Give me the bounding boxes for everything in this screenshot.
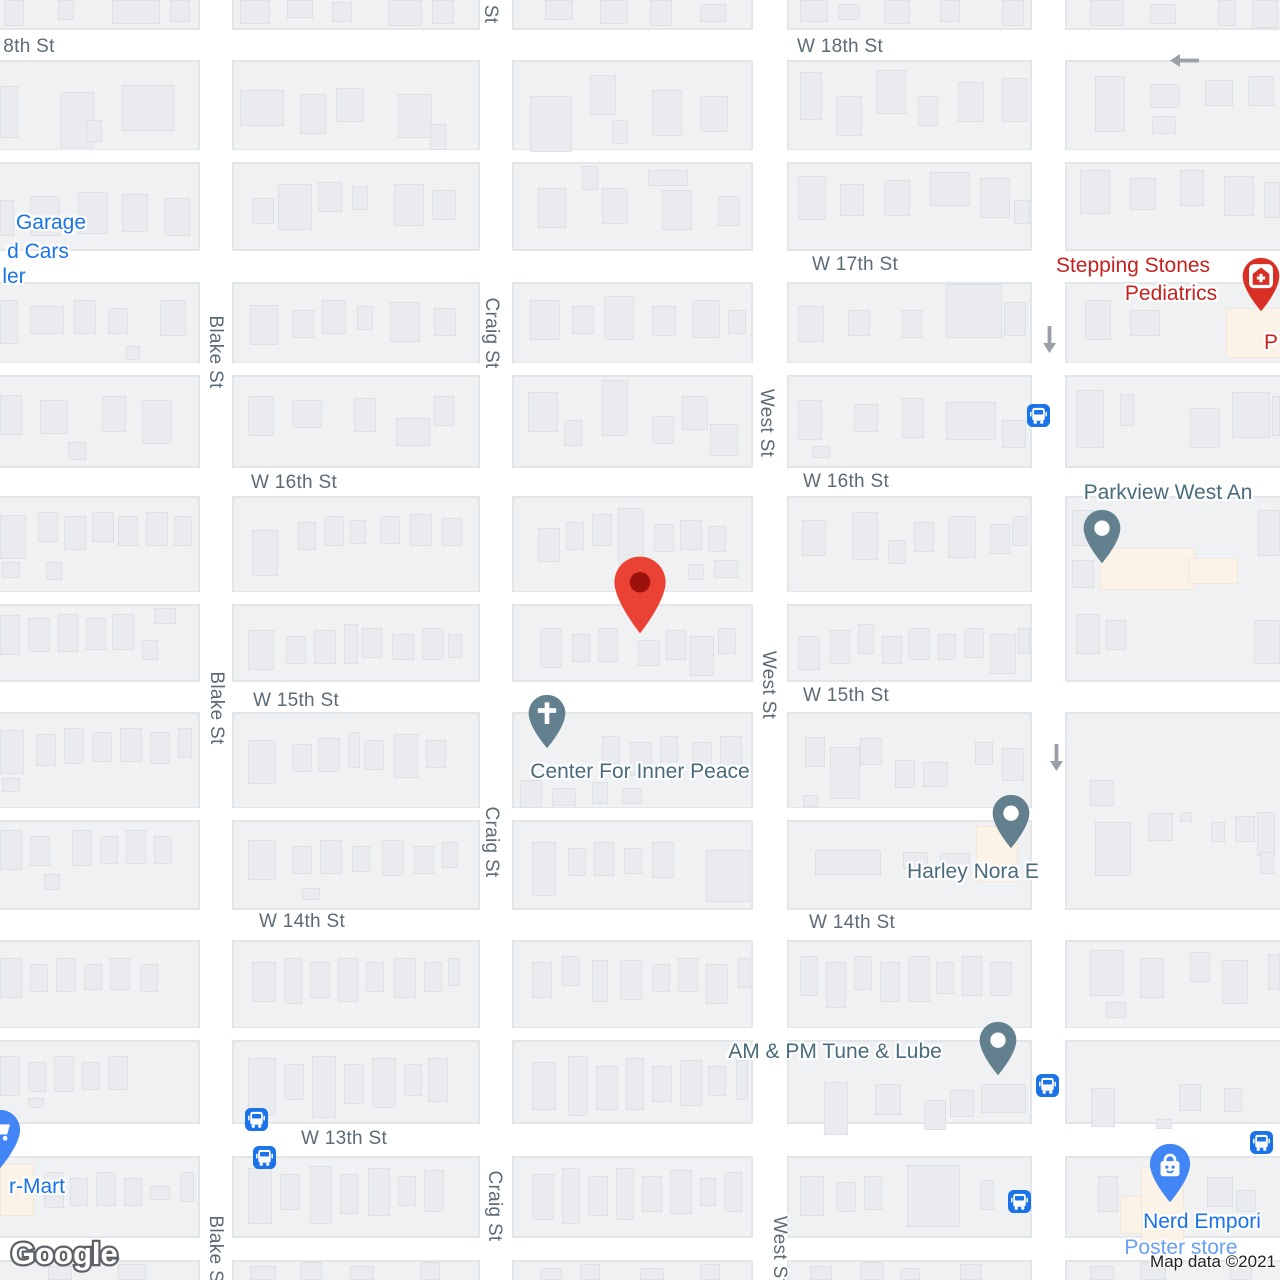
building: [1190, 408, 1220, 448]
alley: [0, 150, 1280, 162]
building: [287, 0, 313, 18]
building: [562, 1168, 580, 1224]
google-logo[interactable]: Google: [8, 1230, 148, 1276]
building: [252, 198, 274, 224]
building: [923, 762, 948, 787]
building: [594, 842, 614, 876]
poi-label-nerd-empori[interactable]: Nerd Empori: [1143, 1210, 1261, 1234]
building: [318, 738, 340, 772]
harley-nora-pin[interactable]: [991, 793, 1031, 855]
building: [908, 628, 930, 660]
building: [354, 398, 376, 432]
building: [100, 836, 118, 864]
building: [596, 1066, 618, 1110]
poi-label-stepping-stones[interactable]: Stepping Stones: [1056, 254, 1210, 278]
building: [604, 296, 634, 340]
building: [590, 75, 616, 115]
building: [398, 94, 432, 138]
building: [654, 524, 674, 552]
building: [1207, 1177, 1233, 1207]
building: [248, 740, 276, 784]
poi-label-p[interactable]: P: [1264, 331, 1278, 355]
building: [690, 636, 714, 676]
building: [2, 562, 20, 578]
one-way-arrow-down-icon: [1043, 326, 1056, 358]
building: [344, 1064, 364, 1104]
building: [248, 630, 274, 670]
building: [990, 962, 1012, 996]
building: [284, 1064, 304, 1100]
building: [958, 82, 984, 122]
street-label-w-15th-st: W 15th St: [253, 690, 339, 712]
building: [602, 188, 628, 224]
building: [880, 962, 900, 1002]
building: [568, 1056, 588, 1116]
building: [802, 520, 826, 556]
building: [718, 196, 740, 226]
building: [1106, 620, 1126, 650]
building: [286, 636, 306, 664]
building: [1150, 4, 1176, 24]
building: [424, 962, 442, 992]
building: [1224, 1088, 1242, 1112]
building: [678, 958, 698, 992]
building: [962, 956, 982, 996]
building: [54, 1056, 74, 1092]
street-label-w-15th-st: W 15th St: [803, 685, 889, 707]
building: [357, 306, 373, 330]
building: [28, 1098, 44, 1108]
building: [1018, 628, 1030, 654]
building: [854, 956, 872, 990]
building: [1236, 1190, 1256, 1212]
building: [588, 1176, 608, 1216]
building: [840, 184, 864, 216]
building: [422, 628, 444, 660]
alley: [0, 592, 1032, 604]
building: [930, 172, 970, 206]
building: [424, 1170, 444, 1212]
building: [28, 1062, 46, 1092]
building: [30, 306, 64, 334]
bus-stop-icon[interactable]: [245, 1108, 268, 1136]
building: [1090, 780, 1114, 806]
building: [164, 198, 190, 236]
building: [800, 1176, 824, 1216]
building: [64, 728, 84, 764]
building: [448, 634, 462, 658]
building: [652, 1066, 672, 1102]
poi-label-ler[interactable]: ler: [2, 265, 25, 289]
building: [248, 396, 274, 436]
building: [58, 614, 78, 652]
building: [1205, 80, 1233, 106]
building: [146, 512, 168, 546]
building: [1156, 1119, 1172, 1129]
building: [900, 1268, 920, 1280]
building: [1012, 516, 1028, 546]
building: [298, 522, 316, 550]
building: [0, 730, 24, 774]
building: [180, 1172, 194, 1202]
building: [1090, 1266, 1114, 1280]
building: [864, 1176, 882, 1210]
building: [1002, 748, 1024, 781]
street-label-w-16th-st: W 16th St: [251, 472, 337, 494]
building: [1224, 176, 1254, 216]
building: [616, 1168, 634, 1220]
building: [914, 522, 934, 552]
street-label-w-17th-st: W 17th St: [812, 254, 898, 276]
building: [860, 738, 882, 765]
building: [1264, 182, 1280, 218]
building: [372, 1058, 396, 1108]
building: [348, 732, 360, 768]
building: [860, 1262, 884, 1280]
building: [40, 400, 68, 434]
building: [340, 1174, 358, 1214]
building: [30, 836, 50, 866]
building: [312, 1056, 336, 1118]
building: [292, 400, 322, 428]
building: [572, 634, 590, 662]
am-pm-tune-lube-pin[interactable]: [978, 1020, 1018, 1082]
building: [336, 88, 364, 122]
building: [736, 1060, 748, 1100]
building: [72, 830, 92, 866]
street-label-craig-st: Craig St: [480, 806, 502, 877]
building: [1148, 813, 1173, 841]
building: [1150, 84, 1180, 108]
building: [160, 300, 186, 336]
street-label-craig-st: Craig St: [480, 297, 502, 368]
building: [332, 2, 352, 22]
building: [174, 516, 192, 546]
building: [1085, 300, 1111, 340]
center-for-inner-peace-pin[interactable]: [527, 693, 567, 755]
building: [1090, 950, 1124, 996]
building: [154, 608, 176, 624]
building: [318, 182, 342, 212]
building: [800, 0, 828, 22]
building: [448, 958, 460, 986]
street-label-blake-st: Blake St: [205, 671, 227, 744]
building: [624, 848, 642, 874]
building: [592, 514, 612, 546]
building: [0, 86, 18, 138]
building: [824, 1082, 848, 1135]
bus-stop-icon[interactable]: [1008, 1190, 1031, 1218]
street-label-west-st: West St: [755, 389, 777, 457]
street-label-w-13th-st: W 13th St: [301, 1128, 387, 1150]
building: [990, 524, 1010, 554]
building: [950, 1090, 974, 1117]
bus-stop-icon[interactable]: [253, 1146, 276, 1174]
mart-pin[interactable]: [0, 1108, 22, 1175]
building: [1002, 0, 1024, 26]
street-label-blake-st: Blake St: [204, 315, 226, 388]
building: [706, 850, 750, 902]
building: [830, 747, 860, 799]
building: [1002, 420, 1026, 448]
building: [30, 964, 48, 992]
building: [394, 734, 418, 778]
building: [815, 850, 881, 875]
building: [660, 736, 678, 762]
building: [0, 615, 20, 655]
building: [58, 0, 74, 20]
building: [810, 1266, 832, 1280]
building: [432, 190, 456, 220]
building: [852, 512, 878, 560]
building: [924, 1100, 946, 1130]
building: [302, 888, 320, 900]
building: [800, 72, 822, 120]
building: [592, 960, 608, 1002]
building: [368, 1168, 390, 1216]
building: [112, 614, 134, 650]
poi-label-garage[interactable]: Garage: [16, 211, 86, 235]
poi-label-am-pm-tune-lube[interactable]: AM & PM Tune & Lube: [728, 1040, 942, 1064]
building: [70, 1178, 88, 1206]
building: [1258, 510, 1280, 556]
stepping-stones-pediatrics-pin[interactable]: [1241, 256, 1280, 318]
one-way-arrow-left-icon: [1170, 54, 1200, 72]
building: [706, 964, 728, 1004]
building: [394, 958, 416, 998]
building: [545, 0, 573, 20]
building: [622, 788, 642, 804]
building: [102, 396, 126, 432]
building: [0, 200, 14, 236]
building: [708, 526, 726, 552]
building: [0, 830, 22, 870]
poi-label-r-mart[interactable]: r-Mart: [9, 1175, 65, 1199]
building: [96, 1172, 116, 1206]
building: [350, 520, 366, 544]
building: [1002, 78, 1028, 122]
road-h: [0, 1124, 1280, 1156]
building: [1235, 816, 1255, 842]
building: [150, 1186, 170, 1200]
building: [626, 1058, 644, 1110]
building: [680, 520, 702, 550]
building: [2, 778, 20, 792]
building: [1076, 390, 1104, 448]
building: [882, 636, 902, 664]
street-label-w-16th-st: W 16th St: [803, 471, 889, 493]
google-logo-text: Google: [11, 1236, 118, 1271]
building: [432, 0, 454, 24]
building: [126, 346, 140, 360]
alley: [0, 808, 1032, 820]
building: [1254, 620, 1280, 664]
street-label-blake-st: Blake St: [204, 1215, 226, 1280]
building: [142, 400, 172, 444]
building: [248, 840, 276, 880]
street-label-w-14th-st: W 14th St: [809, 912, 895, 934]
building: [122, 194, 148, 232]
building: [252, 962, 276, 1002]
building: [250, 1266, 276, 1280]
building: [700, 4, 726, 22]
building: [1106, 1002, 1126, 1018]
building: [682, 396, 708, 430]
building: [826, 962, 846, 1008]
road-h: [0, 1238, 1280, 1260]
bus-stop-icon[interactable]: [1036, 1074, 1059, 1102]
building: [350, 1266, 374, 1280]
building: [84, 964, 102, 990]
building: [700, 96, 728, 132]
road-h: [0, 910, 1280, 940]
building: [700, 1178, 716, 1206]
building: [36, 734, 56, 766]
building: [380, 516, 400, 544]
building: [248, 1168, 272, 1224]
building: [888, 540, 906, 564]
building: [122, 85, 174, 131]
building: [352, 186, 368, 210]
building: [875, 1084, 901, 1115]
building: [1222, 960, 1248, 1004]
street-label-craig-st: Craig St: [483, 1170, 505, 1241]
building: [640, 1268, 664, 1280]
building: [538, 528, 560, 562]
building: [692, 300, 720, 338]
building: [1180, 170, 1204, 206]
building: [338, 958, 358, 1002]
building: [562, 956, 580, 986]
road-v: [753, 0, 787, 1280]
road-h: [0, 30, 1280, 60]
building: [1090, 0, 1124, 26]
building: [292, 744, 312, 772]
map-canvas[interactable]: 8th StW 18th StW 17th StW 16th StW 16th …: [0, 0, 1280, 1280]
building: [662, 190, 692, 230]
building: [572, 306, 594, 334]
building: [798, 306, 824, 342]
nerd-emporium-pin[interactable]: [1148, 1142, 1192, 1209]
building: [1180, 812, 1192, 822]
building: [530, 300, 560, 340]
building: [278, 184, 312, 230]
building: [800, 956, 818, 996]
building: [392, 634, 414, 660]
building: [362, 628, 382, 658]
building: [918, 96, 938, 126]
building: [648, 170, 688, 186]
building: [902, 310, 922, 338]
building: [884, 0, 910, 24]
poi-label-parkview-west-an[interactable]: Parkview West An: [1084, 481, 1253, 505]
building: [414, 846, 434, 874]
building: [390, 302, 420, 342]
building: [700, 1264, 720, 1280]
poi-label-pediatrics[interactable]: Pediatrics: [1125, 282, 1217, 306]
building: [798, 176, 826, 220]
building: [300, 94, 326, 134]
building: [430, 124, 446, 150]
building: [126, 830, 146, 864]
building: [876, 70, 906, 114]
location-pin[interactable]: [613, 555, 667, 640]
commercial-area: [1120, 1196, 1142, 1234]
building: [1004, 302, 1026, 336]
poi-label-center-for-inner-peace[interactable]: Center For Inner Peace: [530, 760, 749, 784]
building: [344, 624, 358, 664]
building: [0, 300, 18, 344]
building: [322, 300, 346, 334]
building: [280, 1174, 300, 1210]
building: [170, 0, 190, 22]
building: [364, 740, 384, 770]
building: [56, 958, 76, 992]
building: [1179, 1084, 1201, 1111]
building: [0, 1056, 20, 1096]
building: [940, 0, 960, 22]
building: [948, 516, 976, 558]
building: [398, 1176, 416, 1206]
building: [568, 848, 586, 876]
building: [120, 728, 142, 762]
building: [552, 788, 576, 806]
building: [670, 1170, 692, 1214]
map-attribution: Map data ©2021: [1150, 1252, 1276, 1272]
building: [250, 305, 278, 345]
alley: [0, 363, 1280, 375]
building: [292, 310, 314, 338]
street-label-w-18th-st: W 18th St: [797, 36, 883, 58]
building: [310, 1166, 332, 1224]
poi-label-harley-nora-e[interactable]: Harley Nora E: [907, 860, 1039, 884]
commercial-area: [1188, 558, 1238, 584]
building: [396, 418, 430, 446]
building: [442, 518, 462, 546]
building: [884, 180, 910, 216]
building: [540, 1268, 562, 1280]
building: [680, 1060, 702, 1106]
building: [1268, 954, 1280, 990]
one-way-arrow-down-icon: [1050, 744, 1063, 776]
building: [28, 618, 50, 652]
building: [154, 836, 172, 864]
building: [528, 392, 558, 432]
road-v: [200, 0, 232, 1280]
building: [140, 964, 158, 992]
building: [848, 310, 870, 336]
building: [714, 560, 738, 578]
bus-stop-icon[interactable]: [1250, 1131, 1273, 1159]
building: [38, 512, 58, 542]
building: [532, 962, 552, 998]
building: [566, 522, 584, 550]
building: [46, 562, 62, 580]
building: [580, 1264, 600, 1280]
bus-stop-icon[interactable]: [1027, 404, 1050, 432]
building: [1098, 1176, 1118, 1212]
building: [652, 416, 674, 444]
building: [805, 737, 825, 767]
poi-label-d-cars[interactable]: d Cars: [7, 240, 69, 264]
building: [1248, 76, 1274, 106]
building: [142, 640, 158, 660]
building: [394, 184, 424, 226]
building: [650, 0, 672, 26]
building: [1252, 0, 1278, 28]
building: [724, 1172, 742, 1212]
parkview-west-pin[interactable]: [1082, 508, 1122, 570]
